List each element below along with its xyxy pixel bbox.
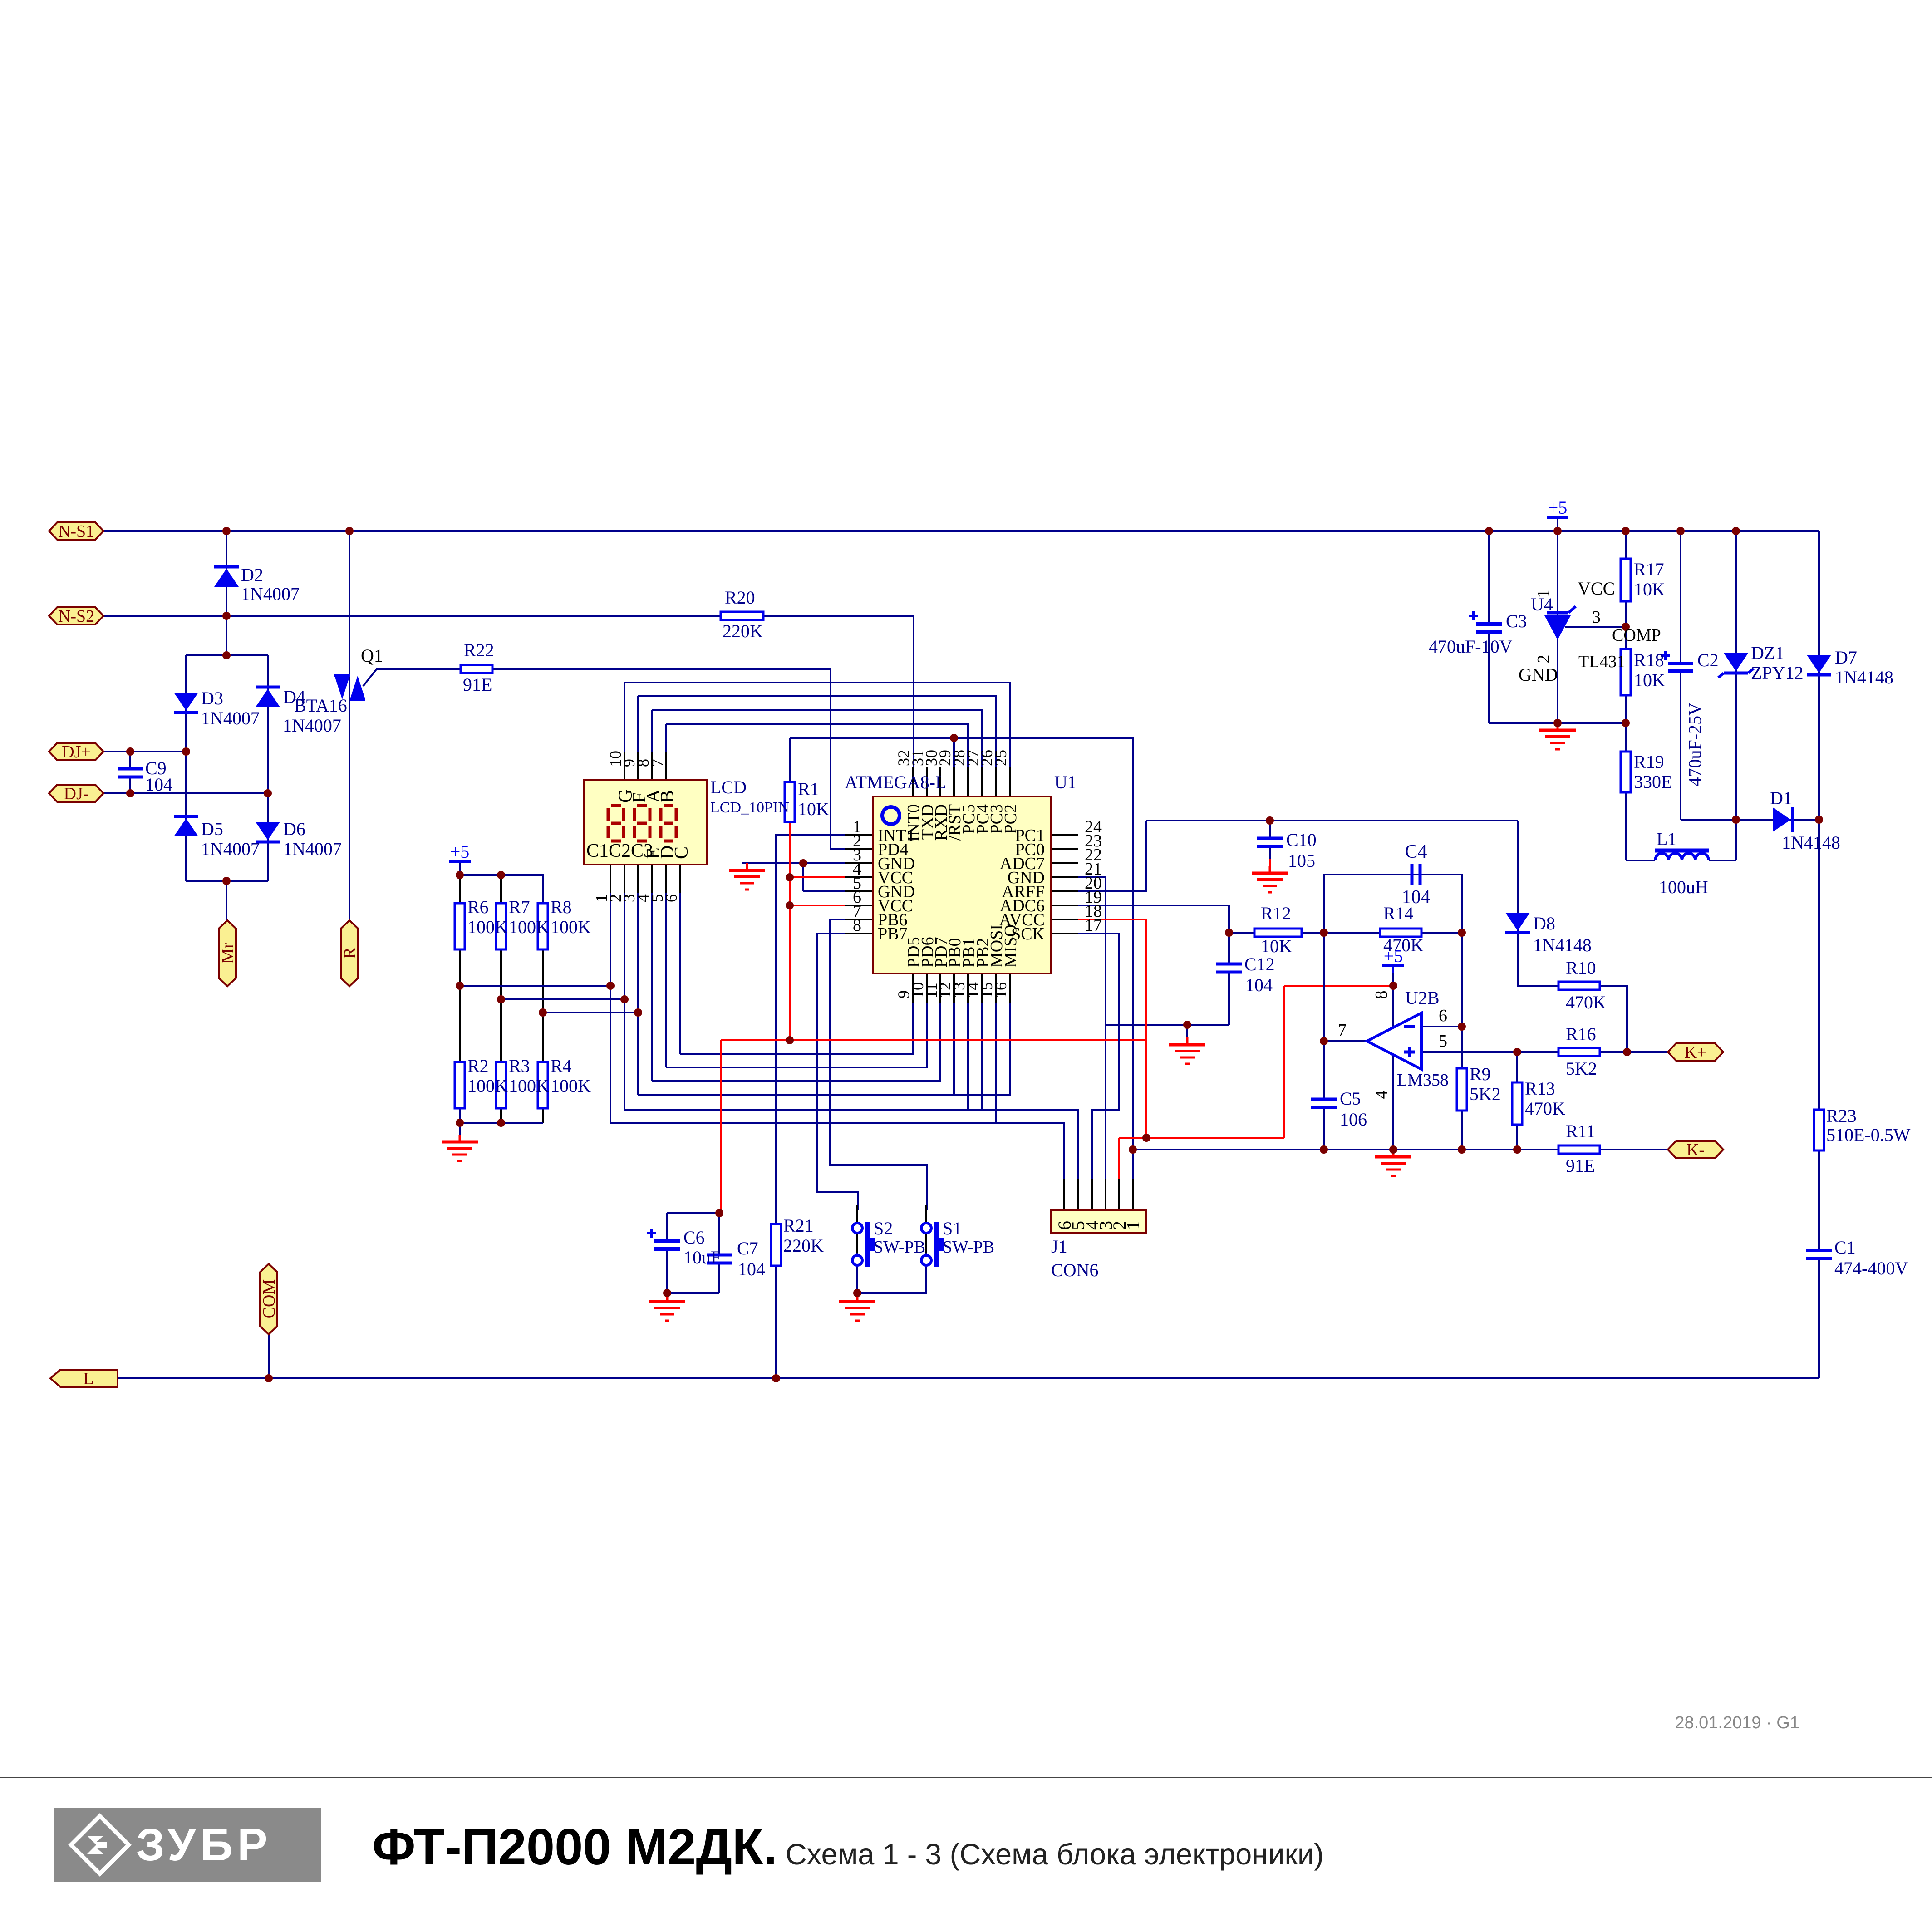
svg-text:106: 106 — [1340, 1109, 1367, 1130]
svg-text:S2: S2 — [874, 1218, 893, 1239]
svg-text:C6: C6 — [683, 1227, 705, 1248]
svg-text:1N4007: 1N4007 — [201, 708, 260, 728]
svg-text:R17: R17 — [1634, 559, 1664, 580]
svg-text:5: 5 — [1439, 1032, 1447, 1051]
svg-text:25: 25 — [992, 750, 1010, 766]
svg-text:104: 104 — [1245, 975, 1273, 995]
svg-text:C5: C5 — [1340, 1088, 1361, 1109]
svg-text:COM: COM — [260, 1279, 279, 1319]
svg-text:470K: 470K — [1525, 1098, 1565, 1119]
svg-text:R: R — [340, 947, 359, 959]
svg-text:PC2: PC2 — [1001, 804, 1020, 834]
svg-text:104: 104 — [1402, 887, 1431, 908]
svg-text:220K: 220K — [783, 1235, 824, 1256]
svg-text:COMP: COMP — [1612, 626, 1661, 645]
svg-text:100K: 100K — [551, 917, 591, 937]
svg-text:R11: R11 — [1566, 1121, 1595, 1141]
svg-text:MISO: MISO — [1001, 924, 1020, 968]
svg-text:100uH: 100uH — [1659, 877, 1708, 897]
svg-text:N-S1: N-S1 — [58, 522, 94, 541]
svg-text:R21: R21 — [783, 1215, 814, 1236]
svg-text:5K2: 5K2 — [1566, 1058, 1597, 1079]
svg-text:D2: D2 — [241, 565, 263, 585]
svg-text:105: 105 — [1288, 850, 1315, 871]
svg-text:330E: 330E — [1634, 772, 1672, 792]
svg-text:R22: R22 — [464, 640, 494, 660]
svg-text:R20: R20 — [725, 587, 755, 608]
svg-text:6: 6 — [1439, 1006, 1447, 1025]
svg-text:VCC: VCC — [1578, 578, 1615, 599]
svg-text:R6: R6 — [467, 897, 489, 917]
svg-text:D8: D8 — [1533, 913, 1555, 934]
svg-text:R13: R13 — [1525, 1078, 1555, 1099]
svg-text:C4: C4 — [1405, 841, 1427, 862]
svg-text:U1: U1 — [1054, 772, 1077, 792]
svg-text:TL431: TL431 — [1578, 652, 1625, 671]
svg-text:7: 7 — [1338, 1021, 1347, 1040]
svg-text:2: 2 — [1534, 655, 1553, 664]
svg-text:R7: R7 — [509, 897, 530, 917]
svg-text:510E-0.5W: 510E-0.5W — [1826, 1125, 1911, 1145]
svg-text:Q1: Q1 — [361, 645, 383, 666]
svg-text:1: 1 — [1123, 1221, 1143, 1230]
svg-text:B: B — [657, 790, 678, 803]
svg-text:R8: R8 — [551, 897, 572, 917]
svg-text:1: 1 — [1534, 590, 1553, 598]
svg-text:LCD: LCD — [710, 777, 747, 797]
svg-text:+5: +5 — [450, 841, 470, 862]
svg-text:ATMEGA8-L: ATMEGA8-L — [845, 772, 946, 792]
svg-text:470uF-10V: 470uF-10V — [1429, 636, 1513, 657]
svg-text:R10: R10 — [1566, 958, 1596, 978]
svg-text:10K: 10K — [1634, 579, 1665, 600]
svg-text:91E: 91E — [1566, 1155, 1595, 1176]
svg-text:L: L — [83, 1369, 93, 1388]
svg-text:L1: L1 — [1657, 829, 1676, 849]
svg-text:LCD_10PIN: LCD_10PIN — [710, 799, 789, 816]
svg-text:R19: R19 — [1634, 752, 1664, 772]
svg-text:C12: C12 — [1244, 954, 1275, 974]
svg-text:100K: 100K — [509, 1076, 549, 1096]
svg-text:1N4007: 1N4007 — [241, 584, 300, 604]
svg-text:8: 8 — [853, 916, 861, 935]
svg-text:BTA16: BTA16 — [294, 695, 347, 716]
svg-text:D5: D5 — [201, 819, 223, 839]
svg-text:10uF: 10uF — [683, 1247, 721, 1268]
svg-text:R4: R4 — [551, 1056, 572, 1076]
svg-text:PB7: PB7 — [878, 924, 907, 944]
svg-text:C3: C3 — [1506, 611, 1527, 631]
svg-text:C2: C2 — [1697, 650, 1719, 670]
svg-text:7: 7 — [648, 759, 666, 767]
svg-text:D1: D1 — [1770, 788, 1792, 808]
svg-text:GND: GND — [1519, 664, 1558, 685]
svg-text:DJ-: DJ- — [64, 784, 89, 803]
svg-text:R18: R18 — [1634, 650, 1664, 670]
svg-text:R2: R2 — [467, 1056, 489, 1076]
svg-text:R1: R1 — [798, 779, 819, 799]
svg-text:100K: 100K — [467, 1076, 508, 1096]
svg-text:1N4148: 1N4148 — [1533, 935, 1592, 955]
svg-text:470uF-25V: 470uF-25V — [1685, 703, 1705, 787]
svg-text:6: 6 — [662, 894, 680, 902]
svg-text:100K: 100K — [551, 1076, 591, 1096]
svg-text:K-: K- — [1686, 1141, 1705, 1160]
svg-text:1N4007: 1N4007 — [283, 715, 341, 736]
svg-text:J1: J1 — [1051, 1236, 1067, 1257]
svg-text:104: 104 — [738, 1259, 765, 1279]
svg-text:17: 17 — [1085, 916, 1102, 935]
svg-text:1N4148: 1N4148 — [1835, 667, 1893, 688]
svg-text:LM358: LM358 — [1397, 1071, 1449, 1090]
svg-text:470K: 470K — [1566, 992, 1606, 1013]
svg-text:CON6: CON6 — [1051, 1260, 1098, 1280]
svg-text:R23: R23 — [1826, 1106, 1857, 1126]
svg-text:SW-PB: SW-PB — [943, 1238, 994, 1257]
svg-text:D6: D6 — [283, 819, 305, 839]
svg-text:C: C — [671, 846, 692, 859]
svg-text:Mr: Mr — [218, 942, 237, 964]
svg-text:C10: C10 — [1286, 830, 1317, 850]
svg-text:C7: C7 — [737, 1238, 758, 1259]
svg-text:100K: 100K — [509, 917, 549, 937]
svg-text:10K: 10K — [1261, 936, 1292, 956]
svg-text:N-S2: N-S2 — [58, 607, 94, 626]
svg-text:1N4007: 1N4007 — [201, 839, 260, 859]
svg-text:10K: 10K — [798, 799, 829, 819]
svg-text:R3: R3 — [509, 1056, 530, 1076]
svg-text:ZPY12: ZPY12 — [1751, 663, 1804, 683]
svg-text:R12: R12 — [1261, 903, 1291, 924]
svg-text:1N4007: 1N4007 — [283, 839, 342, 859]
svg-text:5K2: 5K2 — [1470, 1084, 1501, 1104]
svg-text:220K: 220K — [723, 621, 763, 641]
svg-text:R16: R16 — [1566, 1024, 1596, 1044]
svg-text:3: 3 — [1592, 608, 1601, 627]
svg-text:+5: +5 — [1548, 497, 1568, 518]
svg-text:100K: 100K — [467, 917, 508, 937]
svg-text:U2B: U2B — [1405, 988, 1440, 1008]
svg-text:K+: K+ — [1685, 1043, 1707, 1062]
svg-text:C1: C1 — [1834, 1237, 1856, 1258]
svg-text:DZ1: DZ1 — [1751, 643, 1784, 663]
svg-text:SW-PB: SW-PB — [874, 1238, 925, 1257]
svg-text:1N4148: 1N4148 — [1782, 832, 1840, 853]
svg-text:8: 8 — [1372, 991, 1391, 999]
svg-text:D7: D7 — [1835, 647, 1857, 668]
svg-text:470K: 470K — [1383, 935, 1424, 955]
svg-text:474-400V: 474-400V — [1834, 1258, 1908, 1278]
svg-text:10K: 10K — [1634, 670, 1665, 690]
svg-text:91E: 91E — [463, 674, 492, 695]
svg-text:S1: S1 — [943, 1218, 962, 1239]
svg-text:104: 104 — [145, 774, 172, 795]
svg-text:D3: D3 — [201, 688, 223, 708]
svg-text:DJ+: DJ+ — [62, 742, 91, 762]
svg-text:16: 16 — [992, 982, 1010, 998]
svg-text:4: 4 — [1372, 1091, 1391, 1099]
svg-text:R9: R9 — [1470, 1064, 1491, 1084]
